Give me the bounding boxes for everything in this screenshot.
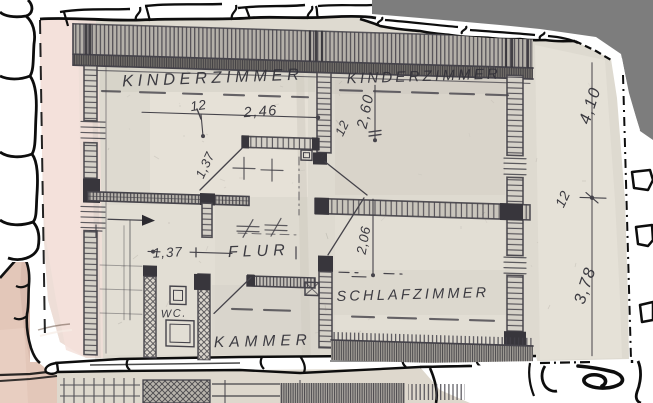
svg-text:WC.: WC. [161,308,187,321]
svg-text:KAMMER: KAMMER [214,332,312,352]
svg-text:12: 12 [189,97,207,114]
svg-text:FLUR: FLUR [228,242,290,261]
svg-text:2,46: 2,46 [242,103,278,121]
svg-text:1,37: 1,37 [152,244,183,261]
